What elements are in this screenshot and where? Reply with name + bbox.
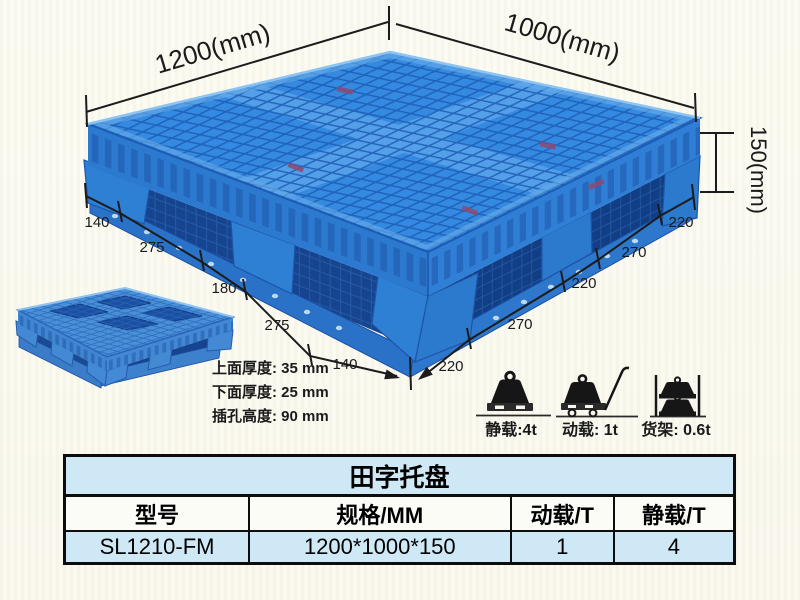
spec-cell-static: 4 (613, 532, 733, 562)
right-dim-label-0: 220 (438, 358, 463, 375)
static-load-label: 静载:4t (485, 420, 537, 439)
spec-header-dynamic: 动载/T (510, 497, 613, 530)
thickness-note-2: 插孔高度: 90 mm (212, 407, 329, 425)
corner-extension-tick (410, 357, 411, 390)
thickness-notes: 上面厚度: 35 mm 下面厚度: 25 mm 插孔高度: 90 mm (212, 359, 329, 425)
spec-table-header-row: 型号 规格/MM 动载/T 静载/T (66, 497, 733, 532)
right-dim-label-4: 220 (668, 214, 693, 231)
spec-table-title: 田字托盘 (66, 457, 733, 497)
rack-load-label: 货架: 0.6t (641, 420, 711, 439)
left-dim-label-0: 140 (84, 214, 109, 231)
rack-load-icon (650, 375, 706, 417)
thickness-note-0: 上面厚度: 35 mm (212, 359, 329, 377)
right-dim-label-1: 270 (507, 316, 532, 333)
left-dim-label-3: 275 (264, 317, 289, 334)
spec-table: 田字托盘 型号 规格/MM 动载/T 静载/T SL1210-FM 1200*1… (63, 454, 736, 565)
right-dim-label-3: 270 (621, 244, 646, 261)
small-pallet-illustration (16, 288, 233, 388)
spec-header-size: 规格/MM (248, 497, 509, 530)
spec-cell-dynamic: 1 (510, 532, 613, 562)
dynamic-load-label: 动载: 1t (562, 421, 619, 439)
product-spec-sheet: 1200(mm) 1000(mm) 150(mm) 140 275 180 27… (0, 0, 800, 600)
thickness-note-1: 下面厚度: 25 mm (212, 383, 329, 401)
load-ratings: 静载:4t 动载: 1t 货架: 0.6t (476, 368, 711, 439)
dim-height: 150(mm) (700, 126, 771, 214)
left-dim-label-1: 275 (139, 239, 164, 256)
spec-cell-size: 1200*1000*150 (248, 532, 509, 562)
dim-height-label: 150(mm) (746, 126, 771, 214)
spec-cell-model: SL1210-FM (66, 532, 248, 562)
left-dim-label-2: 180 (211, 280, 236, 297)
dynamic-load-icon (556, 368, 638, 417)
left-dim-label-4: 140 (332, 356, 357, 373)
right-dim-label-2: 220 (571, 275, 596, 292)
spec-table-data-row: SL1210-FM 1200*1000*150 1 4 (66, 532, 733, 562)
spec-header-model: 型号 (66, 497, 248, 530)
static-load-icon (476, 372, 551, 415)
spec-header-static: 静载/T (613, 497, 733, 530)
dim-length-label: 1200(mm) (151, 17, 273, 79)
